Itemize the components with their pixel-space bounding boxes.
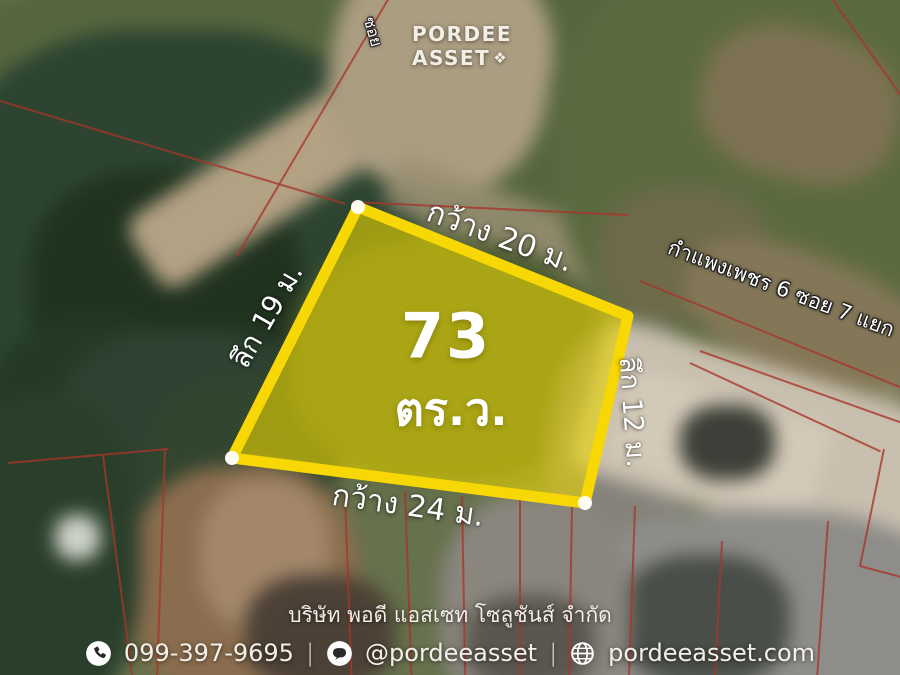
brand-line1: PORDEE [412,22,512,46]
plot-area-value: 73 [401,300,491,373]
footer: บริษัท พอดี แอสเซท โซลูชันส์ จำกัด 099-3… [0,599,900,667]
phone-number: 099-397-9695 [124,639,294,667]
brand-diamond-icon: ❖ [493,46,508,70]
company-name: บริษัท พอดี แอสเซท โซลูชันส์ จำกัด [0,599,900,632]
plot-depth-right-label: ลึก 12 ม. [608,355,659,469]
plot-area-unit: ตร.ว. [395,373,508,445]
line-id: @pordeeasset [365,639,537,667]
separator: | [306,639,314,667]
separator: | [549,639,557,667]
globe-icon [569,640,596,667]
listing-image: PORDEE ASSET❖ ซอย กำแพงเพชร 6 ซอย 7 แยก … [0,0,900,675]
brand-line2: ASSET [412,46,490,70]
vertex-dot [225,451,239,465]
vertex-dot [351,200,365,214]
vertex-dot [578,496,592,510]
phone-icon [85,640,112,667]
brand-logo: PORDEE ASSET❖ [412,22,512,70]
line-chat-icon [326,640,353,667]
website: pordeeasset.com [608,639,815,667]
